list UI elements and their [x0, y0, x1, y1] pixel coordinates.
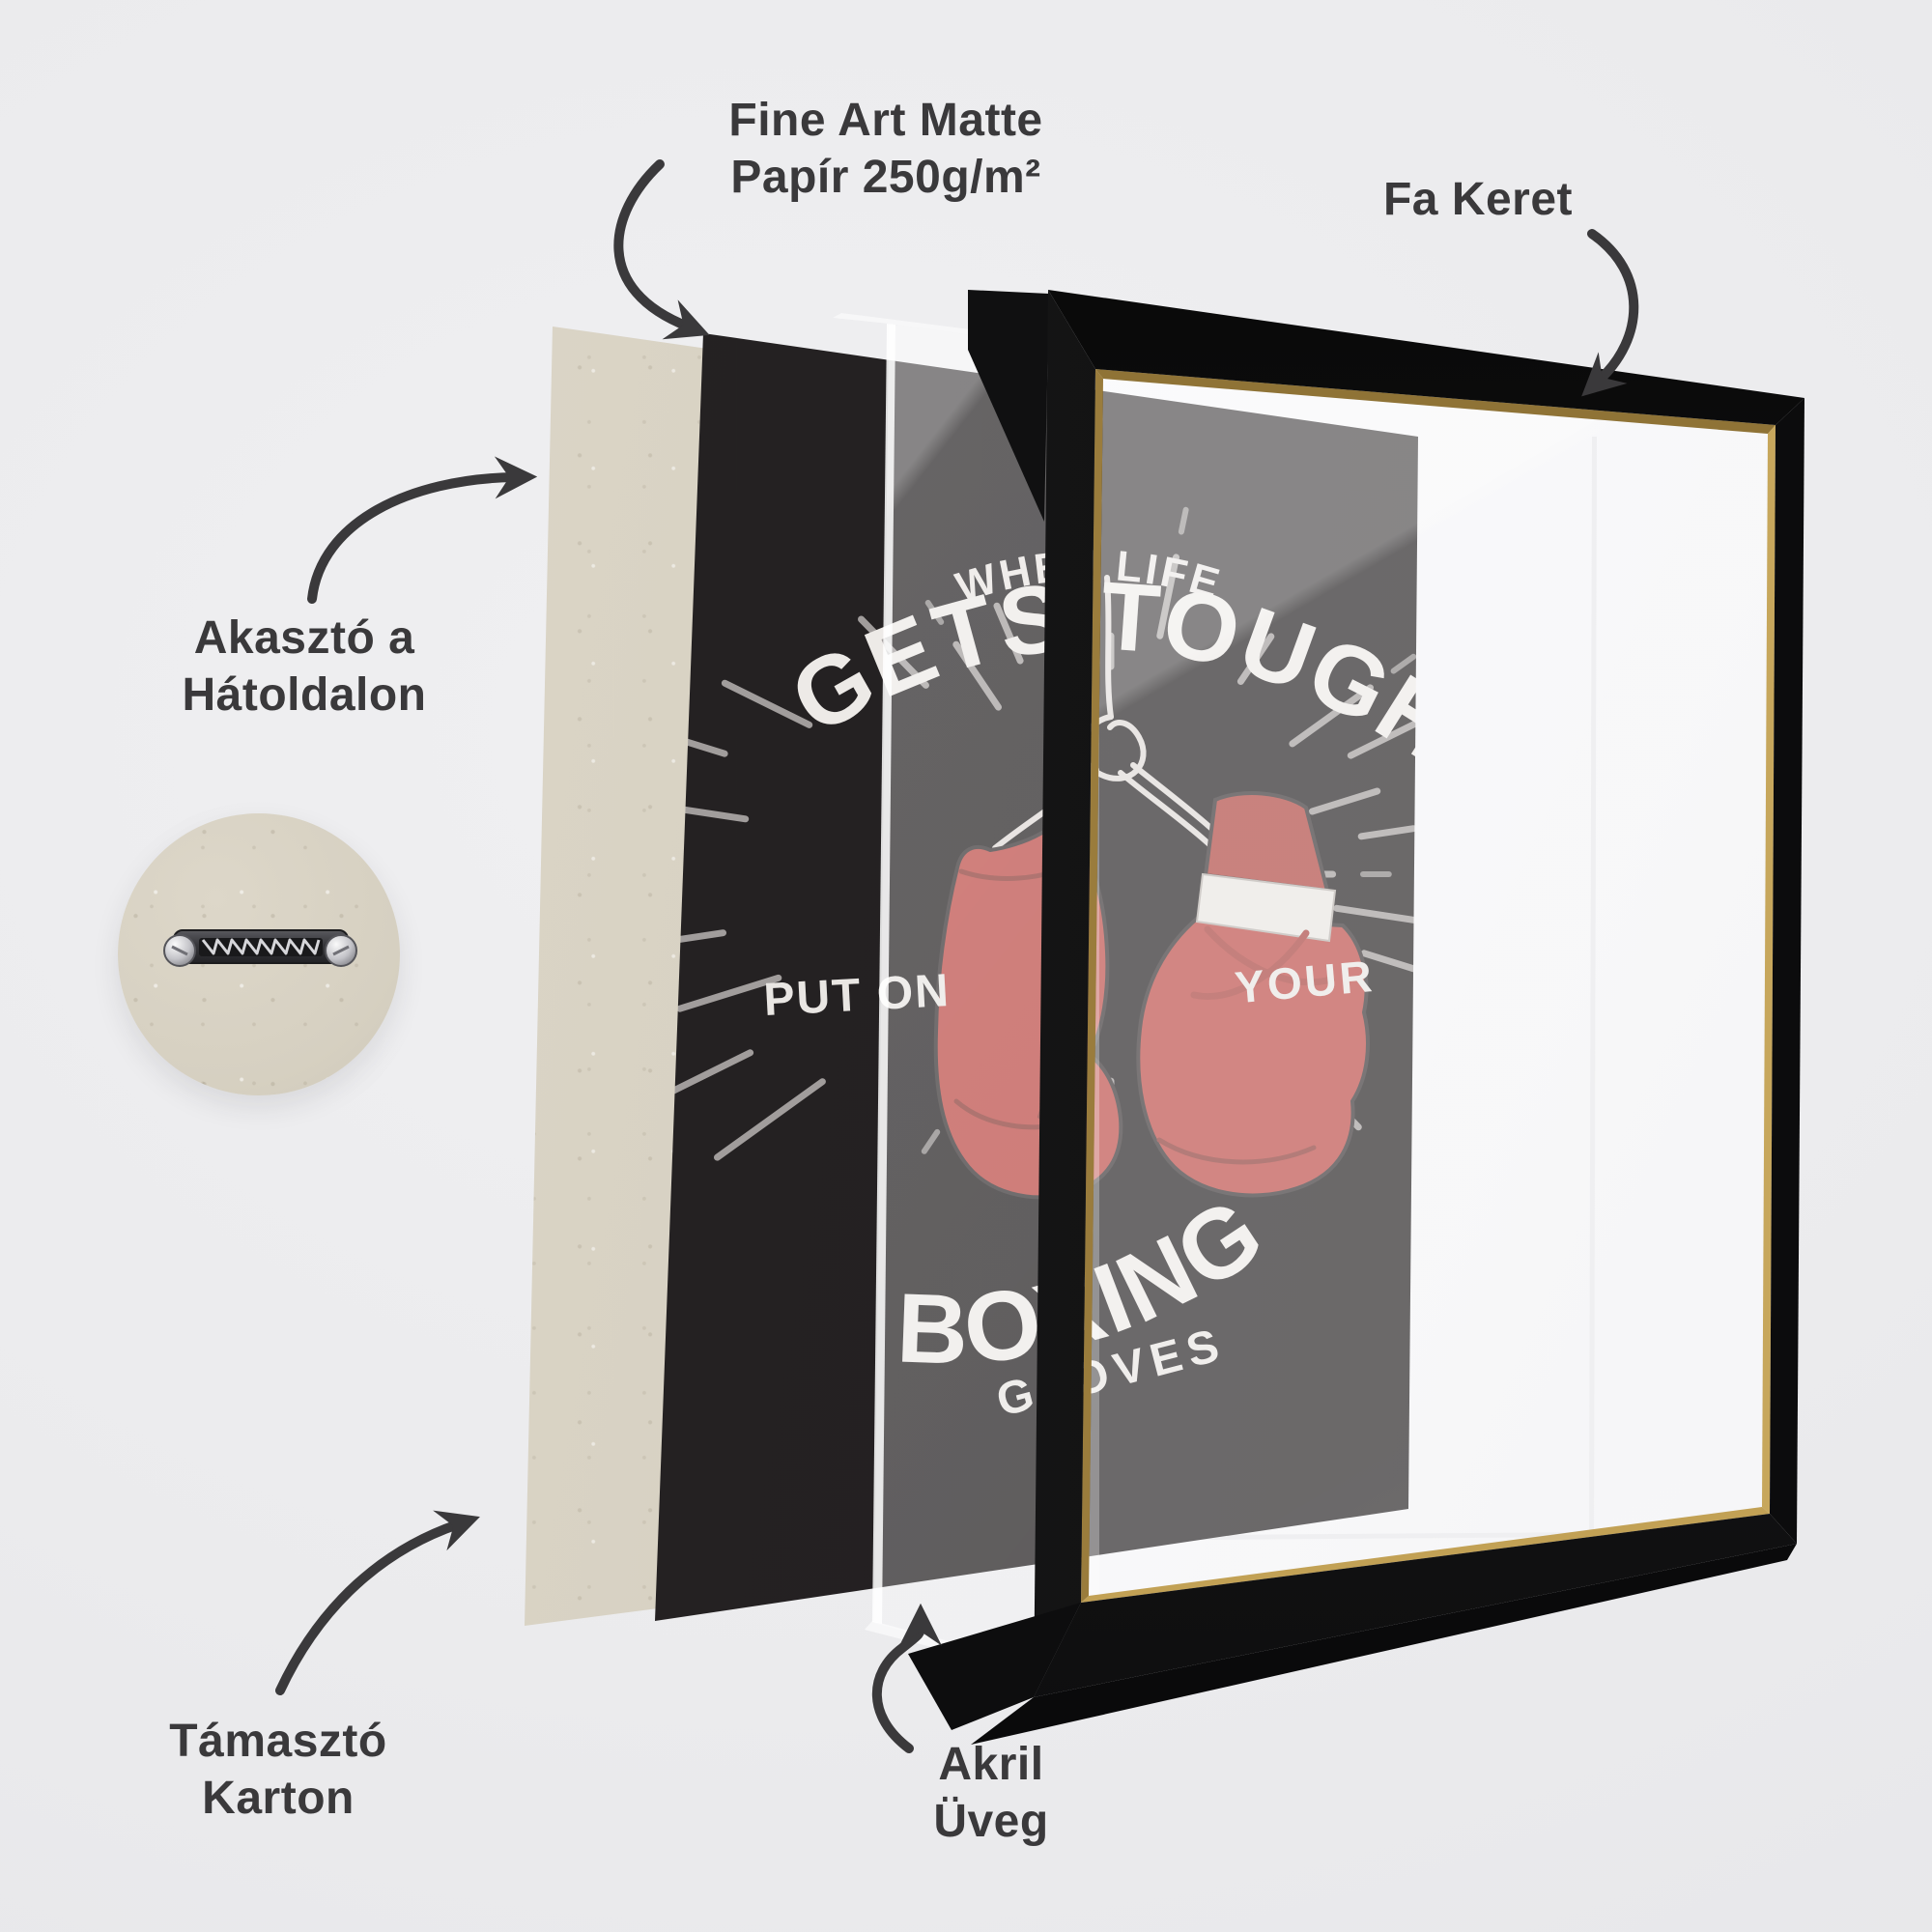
label-fine-art-paper: Fine Art Matte Papír 250g/m²	[728, 93, 1042, 206]
label-acrylic-glass: Akril Üveg	[933, 1737, 1048, 1850]
arrow-frame-label	[1592, 234, 1634, 381]
annotation-arrows	[0, 0, 1932, 1932]
arrow-backing-label	[280, 1524, 458, 1690]
label-support-cardboard: Támasztó Karton	[169, 1714, 386, 1827]
arrow-acrylic-label	[877, 1627, 921, 1748]
arrow-paper-label	[618, 164, 688, 327]
product-layers-infographic: WHEN LIFE GETS TOUGH PUT ON YOUR BOXING …	[0, 0, 1932, 1932]
arrow-hanger-label	[312, 477, 514, 599]
label-wood-frame: Fa Keret	[1383, 172, 1573, 229]
label-hanger-on-back: Akasztó a Hátoldalon	[183, 611, 427, 724]
